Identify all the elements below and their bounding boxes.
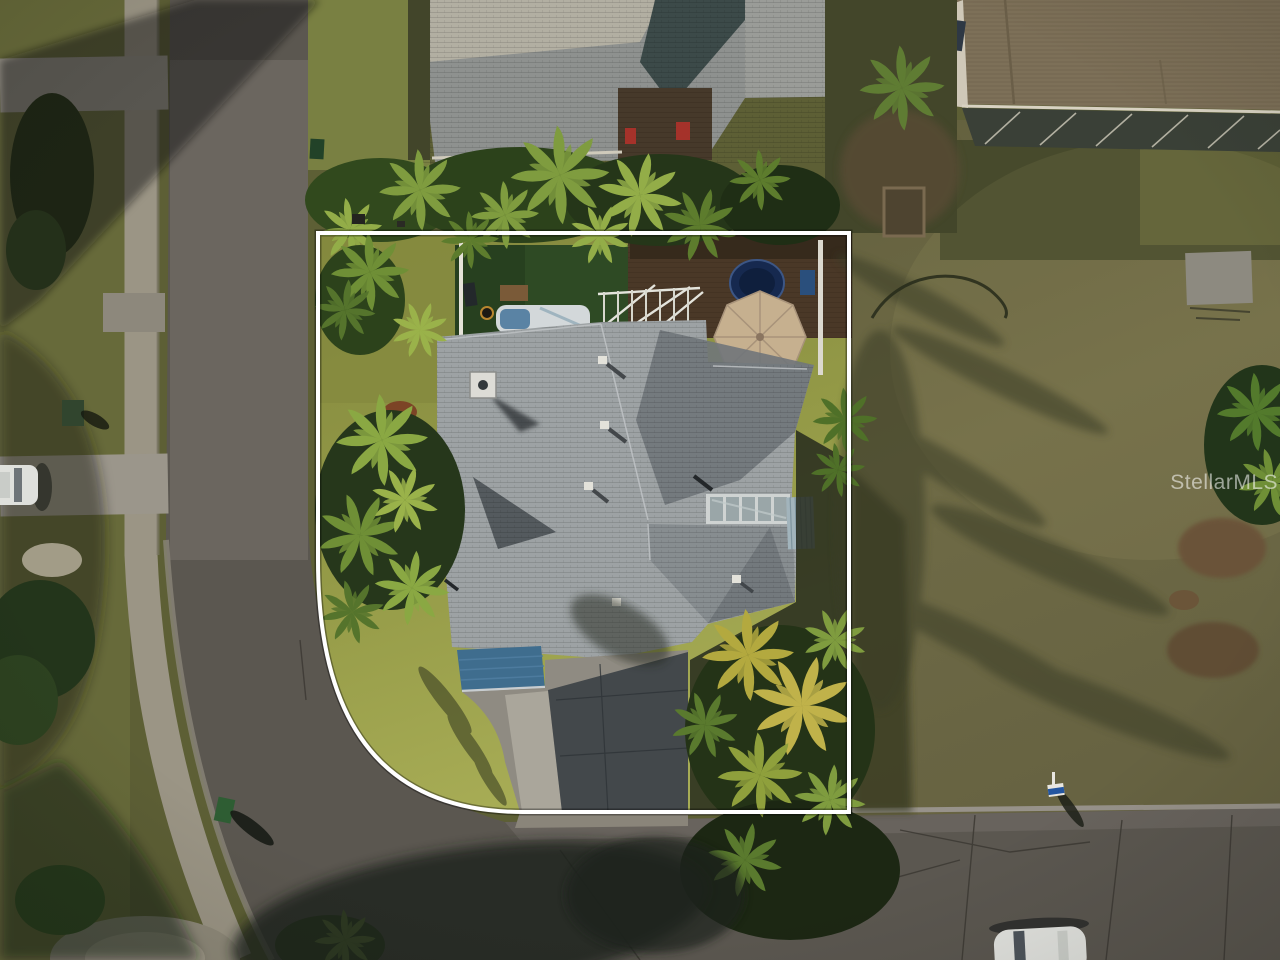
vignette bbox=[0, 0, 1280, 960]
aerial-photo: StellarMLS bbox=[0, 0, 1280, 960]
watermark-text: StellarMLS bbox=[1170, 471, 1278, 494]
aerial-photo-canvas: StellarMLS bbox=[0, 0, 1280, 960]
